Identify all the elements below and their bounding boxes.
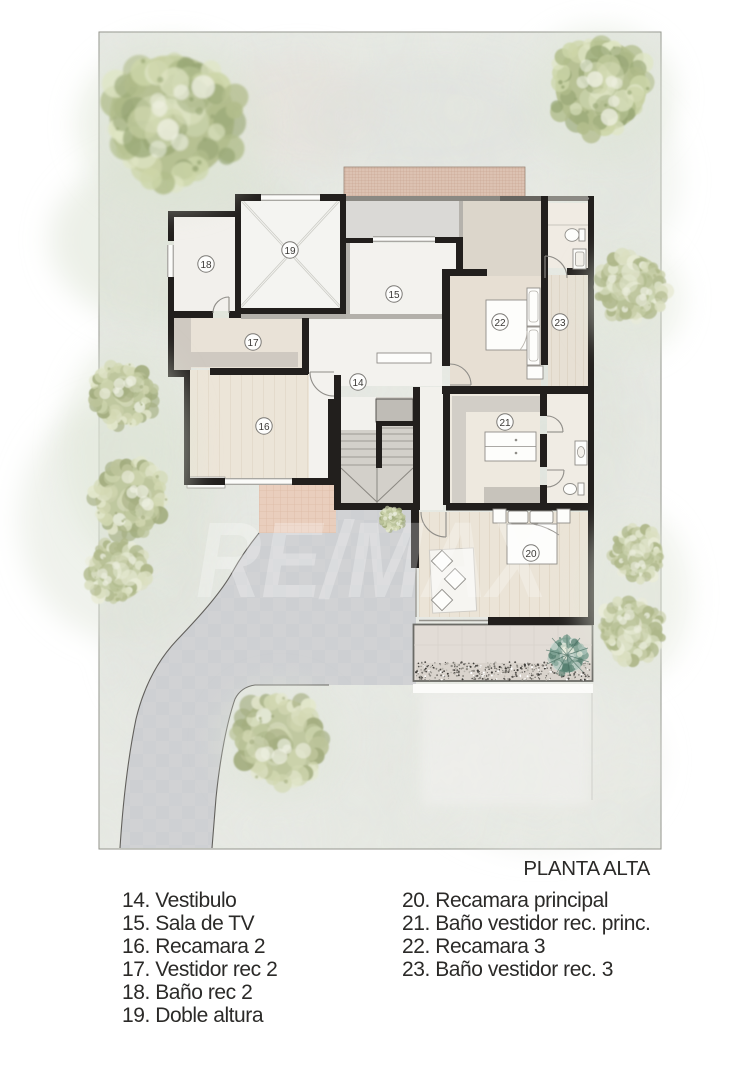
svg-text:23. Baño vestidor rec. 3: 23. Baño vestidor rec. 3 (402, 958, 613, 981)
svg-text:15. Sala de TV: 15. Sala de TV (122, 912, 255, 935)
svg-text:20: 20 (525, 549, 537, 560)
svg-text:18. Baño rec 2: 18. Baño rec 2 (122, 981, 252, 1004)
svg-text:16: 16 (258, 422, 270, 433)
svg-text:19: 19 (284, 246, 296, 257)
svg-text:17: 17 (247, 338, 259, 349)
svg-text:14: 14 (352, 378, 364, 389)
svg-text:22: 22 (494, 318, 506, 329)
svg-text:22. Recamara 3: 22. Recamara 3 (402, 935, 545, 958)
svg-text:PLANTA ALTA: PLANTA ALTA (523, 857, 650, 880)
svg-text:20. Recamara principal: 20. Recamara principal (402, 889, 608, 912)
svg-text:21. Baño vestidor rec. princ.: 21. Baño vestidor rec. princ. (402, 912, 650, 935)
svg-text:16. Recamara 2: 16. Recamara 2 (122, 935, 265, 958)
svg-text:15: 15 (388, 290, 400, 301)
svg-text:23: 23 (554, 318, 566, 329)
svg-text:RE/MAX: RE/MAX (196, 499, 553, 620)
svg-text:21: 21 (499, 418, 511, 429)
svg-text:19. Doble altura: 19. Doble altura (122, 1004, 264, 1027)
svg-text:18: 18 (200, 260, 212, 271)
svg-text:14. Vestibulo: 14. Vestibulo (122, 889, 236, 912)
svg-text:17. Vestidor rec 2: 17. Vestidor rec 2 (122, 958, 277, 981)
